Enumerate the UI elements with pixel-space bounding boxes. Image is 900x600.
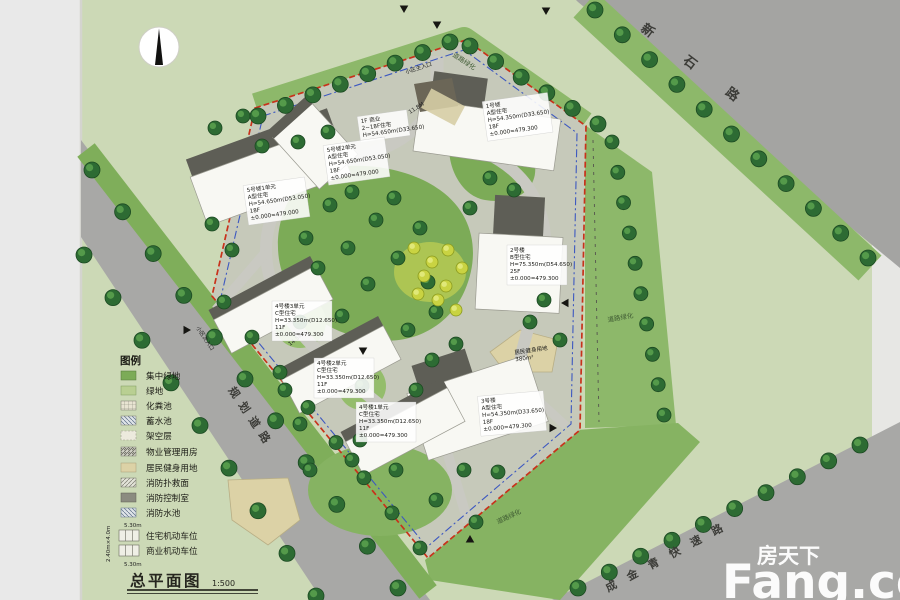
svg-text:商业机动车位: 商业机动车位 — [146, 545, 198, 557]
tree-icon — [642, 52, 658, 68]
tree-icon — [507, 183, 521, 197]
svg-text:±0.000=479.300: ±0.000=479.300 — [359, 433, 408, 439]
svg-text:物业管理用房: 物业管理用房 — [146, 446, 198, 458]
tree-icon — [605, 135, 619, 149]
tree-icon — [225, 243, 239, 257]
legend-row: 蓄水池 — [121, 415, 172, 427]
tree-icon — [669, 76, 685, 92]
tree-icon — [293, 417, 307, 431]
svg-text:18F: 18F — [483, 419, 494, 426]
svg-text:H=75.350m(D54.650): H=75.350m(D54.650) — [510, 262, 572, 268]
tree-icon — [483, 171, 497, 185]
tree-icon — [369, 213, 383, 227]
tree-icon — [115, 204, 131, 220]
tree-icon — [513, 69, 529, 85]
tree-icon — [587, 2, 603, 18]
svg-text:消防水池: 消防水池 — [146, 507, 181, 519]
svg-text:居民健身用地: 居民健身用地 — [146, 462, 198, 474]
svg-text:4号楼3单元: 4号楼3单元 — [275, 302, 305, 310]
svg-text:H=33.350m(D12.650): H=33.350m(D12.650) — [359, 419, 421, 425]
legend-swatch — [121, 508, 136, 517]
tree-icon — [341, 241, 355, 255]
tree-icon — [237, 371, 253, 387]
tree-icon — [279, 545, 295, 561]
tree-icon — [273, 365, 287, 379]
tree-icon — [469, 515, 483, 529]
tree-icon — [268, 413, 284, 429]
label-building-4-unit-1: 4号楼1单元 C型住宅 H=33.350m(D12.650) 11F ±0.00… — [356, 402, 421, 442]
label-building-4-unit-3: 4号楼3单元 C型住宅 H=33.350m(D12.650) 11F ±0.00… — [272, 301, 337, 341]
tree-icon — [308, 588, 324, 600]
legend-row: 集中绿地 — [121, 370, 181, 382]
north-arrow — [139, 27, 179, 67]
legend-row: 消防控制室 — [121, 492, 189, 504]
tree-icon — [359, 538, 375, 554]
tree-yellow-icon — [432, 294, 444, 306]
tree-icon — [401, 323, 415, 337]
tree-icon — [299, 231, 313, 245]
legend-swatch — [121, 386, 136, 395]
tree-yellow-icon — [450, 304, 462, 316]
svg-text:11F: 11F — [359, 426, 369, 432]
legend-swatch — [121, 401, 136, 410]
tree-icon — [303, 463, 317, 477]
tree-icon — [291, 135, 305, 149]
tree-icon — [329, 436, 343, 450]
svg-text:H=33.350m(D12.650): H=33.350m(D12.650) — [317, 375, 379, 381]
tree-icon — [429, 305, 443, 319]
drawing-scale: 1:500 — [212, 579, 235, 588]
tree-icon — [329, 496, 345, 512]
tree-icon — [145, 246, 161, 262]
tree-icon — [611, 165, 625, 179]
tree-icon — [491, 465, 505, 479]
stall-size-label: 2.40m×4.0m — [106, 526, 112, 562]
legend-row: 住宅机动车位 — [119, 530, 198, 542]
tree-icon — [696, 101, 712, 117]
tree-icon — [821, 453, 837, 469]
tree-icon — [758, 485, 774, 501]
lawn-yellow-patch — [394, 242, 466, 302]
tree-icon — [391, 251, 405, 265]
legend-swatch — [121, 493, 136, 502]
legend-swatch — [121, 447, 136, 456]
legend-swatch-parking — [119, 545, 139, 556]
tree-icon — [345, 453, 359, 467]
tree-icon — [221, 460, 237, 476]
tree-icon — [176, 287, 192, 303]
legend-swatch — [121, 371, 136, 380]
tree-icon — [564, 100, 580, 116]
tree-icon — [413, 221, 427, 235]
tree-icon — [305, 87, 321, 103]
tree-icon — [852, 437, 868, 453]
tree-icon — [250, 108, 266, 124]
tree-icon — [590, 116, 606, 132]
legend-swatch — [121, 416, 136, 425]
legend-row: 化粪池 — [121, 400, 172, 412]
tree-icon — [361, 277, 375, 291]
tree-icon — [415, 45, 431, 61]
svg-text:11F: 11F — [317, 382, 327, 388]
tree-yellow-icon — [442, 244, 454, 256]
svg-text:集中绿地: 集中绿地 — [146, 370, 181, 382]
legend-swatch — [121, 431, 136, 440]
svg-text:蓄水池: 蓄水池 — [146, 415, 172, 427]
svg-text:消防扑救面: 消防扑救面 — [146, 477, 189, 489]
tree-icon — [724, 126, 740, 142]
tree-icon — [488, 54, 504, 70]
tree-icon — [84, 162, 100, 178]
drawing-title: 总平面图 — [130, 571, 202, 590]
svg-text:11F: 11F — [275, 325, 285, 331]
parking-depth-label: 5.30m — [124, 523, 142, 529]
svg-text:25F: 25F — [510, 269, 520, 275]
tree-icon — [245, 330, 259, 344]
legend-swatch — [121, 478, 136, 487]
legend-row: 物业管理用房 — [121, 446, 198, 458]
svg-text:架空层: 架空层 — [146, 430, 172, 442]
tree-icon — [617, 196, 631, 210]
watermark-en: Fang.com — [722, 555, 900, 600]
legend-swatch-parking — [119, 530, 139, 541]
tree-icon — [442, 34, 458, 50]
tree-icon — [301, 400, 315, 414]
tree-icon — [205, 217, 219, 231]
tree-icon — [255, 139, 269, 153]
svg-text:绿地: 绿地 — [146, 385, 164, 397]
svg-text:H=33.350m(D12.650): H=33.350m(D12.650) — [275, 318, 337, 324]
tree-icon — [570, 580, 586, 596]
tree-icon — [385, 506, 399, 520]
svg-text:消防控制室: 消防控制室 — [146, 492, 189, 504]
tree-icon — [657, 408, 671, 422]
tree-icon — [236, 109, 250, 123]
tree-icon — [651, 378, 665, 392]
tree-icon — [553, 333, 567, 347]
tree-yellow-icon — [418, 270, 430, 282]
tree-icon — [622, 226, 636, 240]
legend-row: 商业机动车位 — [119, 545, 198, 557]
tree-icon — [277, 97, 293, 113]
tree-icon — [628, 256, 642, 270]
tree-icon — [208, 121, 222, 135]
site-plan-canvas: 新石路 规划道路 成金青快速路 道路绿化 道路绿化 道路绿化 小区主入口 小区次… — [0, 0, 900, 600]
tree-icon — [345, 185, 359, 199]
tree-icon — [311, 261, 325, 275]
tree-icon — [321, 125, 335, 139]
svg-text:住宅机动车位: 住宅机动车位 — [146, 530, 198, 542]
tree-yellow-icon — [412, 288, 424, 300]
tree-icon — [751, 151, 767, 167]
svg-text:C型住宅: C型住宅 — [275, 309, 296, 317]
tree-icon — [409, 383, 423, 397]
tree-icon — [640, 317, 654, 331]
label-building-3: 3号楼 A型住宅 H=54.350m(D33.650) 18F ±0.000=4… — [477, 391, 546, 437]
tree-yellow-icon — [426, 256, 438, 268]
tree-icon — [429, 493, 443, 507]
svg-text:±0.000=479.300: ±0.000=479.300 — [275, 332, 324, 338]
tree-icon — [425, 353, 439, 367]
tree-icon — [387, 191, 401, 205]
tree-icon — [390, 580, 406, 596]
tree-icon — [537, 293, 551, 307]
label-building-2: 2号楼 B型住宅 H=75.350m(D54.650) 25F ±0.000=4… — [507, 245, 572, 285]
tree-icon — [457, 463, 471, 477]
tree-icon — [389, 463, 403, 477]
tree-icon — [860, 250, 876, 266]
svg-text:2号楼: 2号楼 — [510, 246, 525, 254]
parking-depth-label: 5.30m — [124, 562, 142, 568]
tree-icon — [217, 295, 231, 309]
legend-row: 消防扑救面 — [121, 477, 189, 489]
svg-text:C型住宅: C型住宅 — [317, 366, 338, 374]
tree-icon — [833, 225, 849, 241]
tree-icon — [645, 347, 659, 361]
tree-icon — [778, 176, 794, 192]
tree-icon — [413, 541, 427, 555]
svg-text:4号楼2单元: 4号楼2单元 — [317, 359, 347, 367]
tree-icon — [357, 471, 371, 485]
tree-icon — [727, 501, 743, 517]
tree-icon — [360, 66, 376, 82]
tree-icon — [387, 55, 403, 71]
tree-yellow-icon — [408, 242, 420, 254]
svg-text:±0.000=479.300: ±0.000=479.300 — [317, 389, 366, 395]
tree-icon — [805, 200, 821, 216]
svg-text:B型住宅: B型住宅 — [510, 253, 531, 261]
tree-yellow-icon — [456, 262, 468, 274]
svg-text:C型住宅: C型住宅 — [359, 410, 380, 418]
label-building-4-unit-2: 4号楼2单元 C型住宅 H=33.350m(D12.650) 11F ±0.00… — [314, 358, 379, 398]
tree-icon — [134, 332, 150, 348]
tree-icon — [463, 201, 477, 215]
tree-icon — [614, 27, 630, 43]
tree-icon — [105, 290, 121, 306]
tree-icon — [192, 418, 208, 434]
tree-icon — [449, 337, 463, 351]
tree-yellow-icon — [440, 280, 452, 292]
tree-icon — [250, 503, 266, 519]
legend-row: 消防水池 — [121, 507, 181, 519]
svg-text:4号楼1单元: 4号楼1单元 — [359, 403, 389, 411]
tree-icon — [76, 247, 92, 263]
legend-row: 居民健身用地 — [121, 462, 198, 474]
tree-icon — [523, 315, 537, 329]
tree-icon — [278, 383, 292, 397]
tree-icon — [332, 76, 348, 92]
legend-swatch — [121, 463, 136, 472]
tree-icon — [634, 287, 648, 301]
tree-icon — [462, 38, 478, 54]
site-plan-page: 新石路 规划道路 成金青快速路 道路绿化 道路绿化 道路绿化 小区主入口 小区次… — [0, 0, 900, 600]
tree-icon — [323, 198, 337, 212]
legend-title: 图例 — [120, 354, 141, 367]
svg-text:化粪池: 化粪池 — [146, 400, 172, 412]
svg-text:±0.000=479.300: ±0.000=479.300 — [510, 276, 559, 282]
tree-icon — [789, 469, 805, 485]
